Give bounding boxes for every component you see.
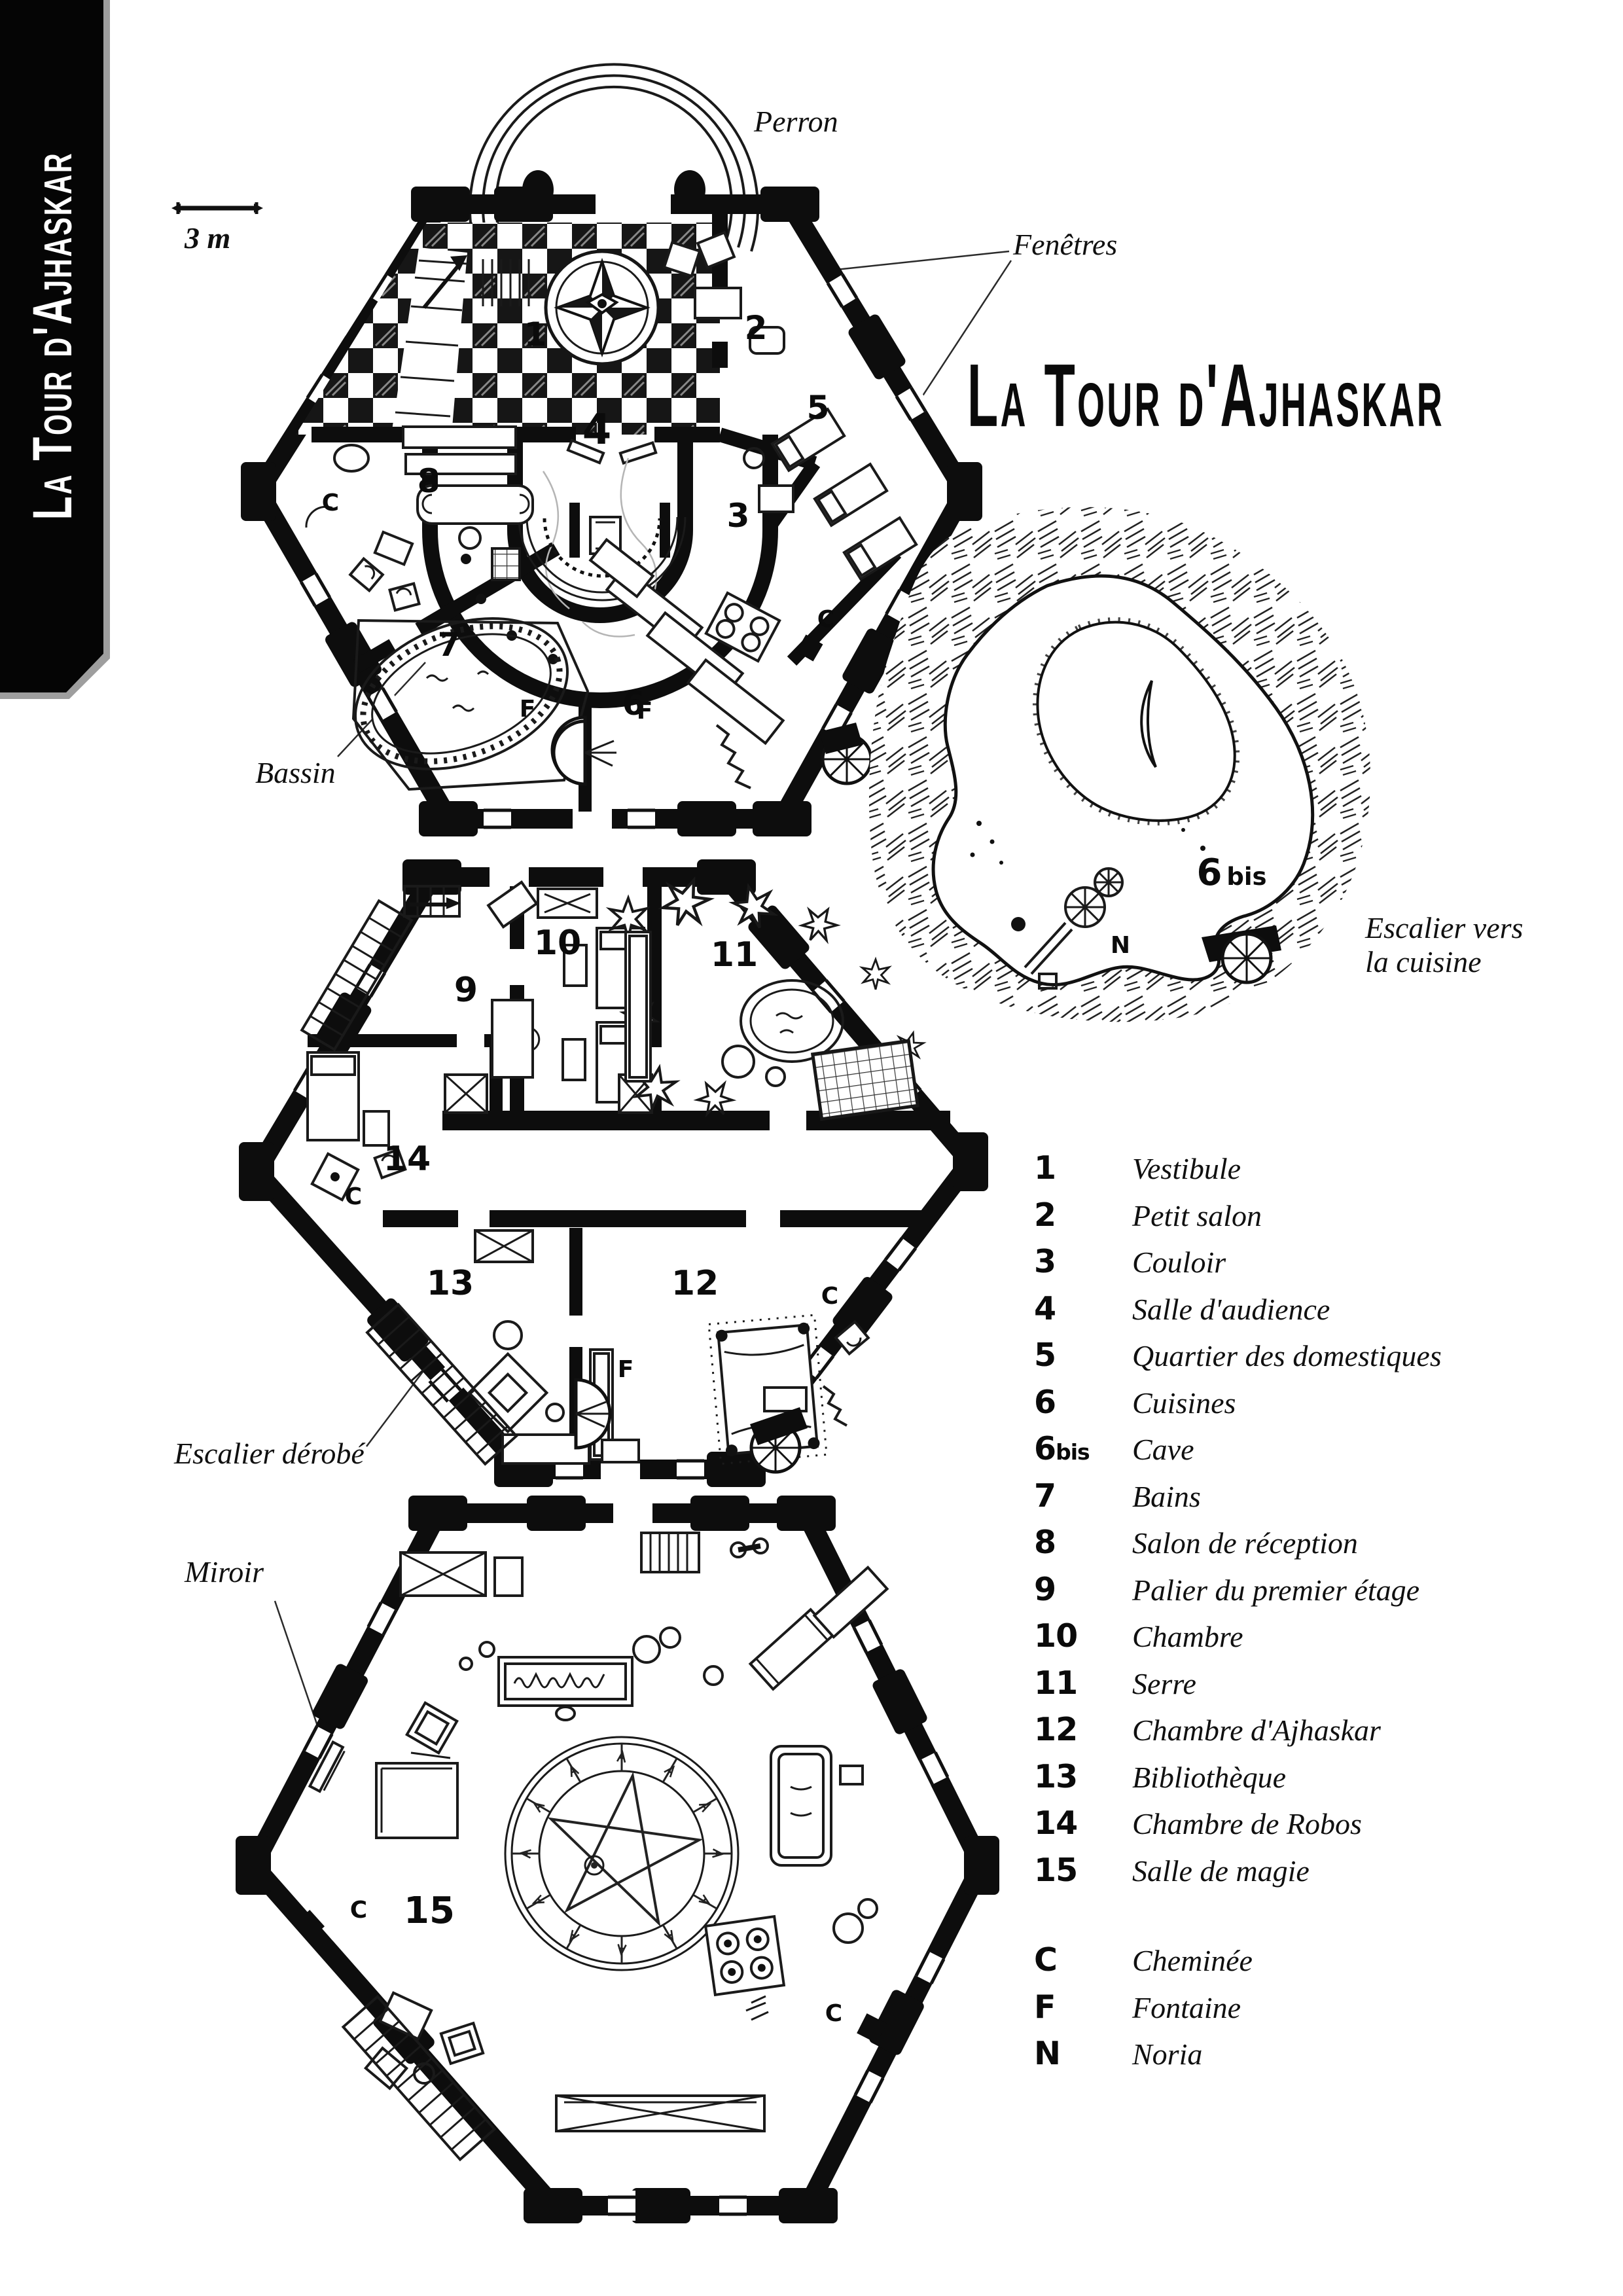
fontaine-marker: F bbox=[618, 1356, 634, 1383]
legend-number: 14 bbox=[1034, 1804, 1132, 1842]
room-12-number: 12 bbox=[671, 1264, 719, 1303]
legend-label: Petit salon bbox=[1132, 1198, 1262, 1233]
legend-label: Cave bbox=[1132, 1432, 1194, 1467]
room-4-number: 4 bbox=[582, 406, 612, 454]
legend-label: Fontaine bbox=[1132, 1990, 1241, 2025]
legend-symbol: N bbox=[1034, 2035, 1132, 2072]
room-7-number: 7 bbox=[438, 626, 461, 664]
legend-row: 3Couloir bbox=[1034, 1243, 1442, 1290]
legend-number: 1 bbox=[1034, 1149, 1132, 1187]
fire-scribble bbox=[746, 1996, 768, 2020]
fontaine-marker: F bbox=[637, 698, 653, 725]
cave-plan: 6 bis N bbox=[869, 507, 1370, 1022]
legend-row: 15Salle de magie bbox=[1034, 1852, 1442, 1899]
bone-icon bbox=[731, 1539, 768, 1557]
legend-label: Cheminée bbox=[1132, 1943, 1253, 1978]
legend-label: Chambre d'Ajhaskar bbox=[1132, 1713, 1381, 1748]
legend-number: 6bis bbox=[1034, 1430, 1132, 1467]
room-11-number: 11 bbox=[711, 935, 758, 975]
legend-label: Palier du premier étage bbox=[1132, 1573, 1419, 1607]
cheminee-marker: C bbox=[322, 490, 339, 516]
room-8-number: 8 bbox=[418, 462, 440, 500]
legend-label: Serre bbox=[1132, 1666, 1196, 1701]
legend-label: Quartier des domestiques bbox=[1132, 1338, 1442, 1373]
legend-number: 11 bbox=[1034, 1664, 1132, 1702]
first-floor-plan: 9 10 11 12 13 14 C C F bbox=[239, 859, 988, 1487]
room-14-number: 14 bbox=[383, 1139, 431, 1179]
legend-row: 8Salon de réception bbox=[1034, 1524, 1442, 1571]
sidebar-band: La Tour d'Ajhaskar bbox=[0, 0, 103, 692]
legend-number: 8 bbox=[1034, 1524, 1132, 1561]
top-floor-plan: 15 C C bbox=[236, 1496, 999, 2223]
cave-number-suffix: bis bbox=[1226, 863, 1266, 891]
legend-label: Bibliothèque bbox=[1132, 1760, 1286, 1795]
noria-marker: N bbox=[1111, 932, 1130, 959]
legend-row: 10Chambre bbox=[1034, 1617, 1442, 1664]
room-3-number: 3 bbox=[727, 497, 750, 535]
legend-row: 5Quartier des domestiques bbox=[1034, 1336, 1442, 1384]
page-title: La Tour d'Ajhaskar bbox=[967, 346, 1444, 447]
legend-number: 10 bbox=[1034, 1617, 1132, 1655]
legend-label: Noria bbox=[1132, 2037, 1202, 2072]
cheminee-marker: C bbox=[350, 1897, 367, 1924]
room-5-number: 5 bbox=[807, 389, 830, 427]
label-escalier-cuisine-line1: Escalier vers bbox=[1365, 911, 1523, 945]
legend-row: 13Bibliothèque bbox=[1034, 1758, 1442, 1805]
room-13-number: 13 bbox=[427, 1264, 474, 1303]
fountains bbox=[552, 717, 616, 784]
legend-gap bbox=[1034, 1898, 1442, 1941]
legend-number: 15 bbox=[1034, 1852, 1132, 1889]
legend-number: 13 bbox=[1034, 1758, 1132, 1795]
legend-label: Vestibule bbox=[1132, 1151, 1241, 1186]
sidebar: La Tour d'Ajhaskar bbox=[0, 0, 110, 699]
legend-label: Salle de magie bbox=[1132, 1854, 1310, 1888]
legend-row: 6bisCave bbox=[1034, 1430, 1442, 1477]
cave-number: 6 bbox=[1197, 852, 1222, 894]
legend-row: 14Chambre de Robos bbox=[1034, 1804, 1442, 1852]
label-fenetres: Fenêtres bbox=[1013, 228, 1117, 262]
legend-label: Salle d'audience bbox=[1132, 1292, 1330, 1327]
legend-label: Chambre bbox=[1132, 1619, 1243, 1654]
sidebar-title: La Tour d'Ajhaskar bbox=[9, 207, 96, 520]
room-10-number: 10 bbox=[534, 924, 581, 963]
legend-row: 12Chambre d'Ajhaskar bbox=[1034, 1711, 1442, 1758]
scale-label: 3 m bbox=[185, 221, 230, 255]
legend-label: Salon de réception bbox=[1132, 1526, 1358, 1560]
legend-number: 6 bbox=[1034, 1384, 1132, 1421]
legend-row: 2Petit salon bbox=[1034, 1196, 1442, 1244]
label-perron: Perron bbox=[754, 105, 838, 139]
label-bassin: Bassin bbox=[255, 756, 336, 790]
legend-row: 1Vestibule bbox=[1034, 1149, 1442, 1196]
ground-floor-plan: 1 2 3 4 5 6 7 8 C C F F bbox=[241, 64, 982, 836]
room-9-number: 9 bbox=[454, 971, 478, 1010]
label-escalier-cuisine-line2: la cuisine bbox=[1365, 945, 1523, 979]
cheminee-marker: C bbox=[825, 2000, 842, 2027]
legend-row: 11Serre bbox=[1034, 1664, 1442, 1712]
cheminee-marker: C bbox=[821, 1283, 838, 1310]
legend-row: 7Bains bbox=[1034, 1477, 1442, 1524]
page: 1 2 3 4 5 6 7 8 C C F F bbox=[0, 0, 1623, 2296]
label-escalier-derobe: Escalier dérobé bbox=[174, 1437, 365, 1471]
legend-number: 3 bbox=[1034, 1243, 1132, 1280]
legend-number: 4 bbox=[1034, 1290, 1132, 1327]
cheminee-marker: C bbox=[345, 1183, 362, 1210]
legend-number: 12 bbox=[1034, 1711, 1132, 1748]
legend-number: 5 bbox=[1034, 1336, 1132, 1374]
room-2-number: 2 bbox=[745, 309, 768, 347]
legend-row: FFontaine bbox=[1034, 1988, 1442, 2036]
legend-symbol: F bbox=[1034, 1988, 1132, 2026]
legend: 1Vestibule 2Petit salon 3Couloir 4Salle … bbox=[1034, 1149, 1442, 2082]
legend-row: 4Salle d'audience bbox=[1034, 1290, 1442, 1337]
label-miroir: Miroir bbox=[185, 1555, 264, 1589]
room-1-number: 1 bbox=[524, 315, 547, 353]
legend-row: 6Cuisines bbox=[1034, 1384, 1442, 1431]
legend-number: 9 bbox=[1034, 1571, 1132, 1608]
legend-label: Chambre de Robos bbox=[1132, 1806, 1362, 1841]
legend-number: 2 bbox=[1034, 1196, 1132, 1234]
legend-row: 9Palier du premier étage bbox=[1034, 1571, 1442, 1618]
legend-number: 7 bbox=[1034, 1477, 1132, 1515]
legend-label: Bains bbox=[1132, 1479, 1201, 1514]
legend-symbol: C bbox=[1034, 1941, 1132, 1979]
legend-label: Couloir bbox=[1132, 1245, 1226, 1280]
magic-circle bbox=[505, 1737, 738, 1970]
legend-row: CCheminée bbox=[1034, 1941, 1442, 1988]
legend-row: NNoria bbox=[1034, 2035, 1442, 2082]
label-escalier-cuisine: Escalier vers la cuisine bbox=[1365, 911, 1523, 978]
kitchen-furniture bbox=[590, 540, 871, 788]
fontaine-marker: F bbox=[520, 696, 536, 723]
scale-bar bbox=[171, 202, 263, 214]
cheminee-marker: C bbox=[817, 606, 834, 633]
room-15-number: 15 bbox=[404, 1890, 455, 1932]
legend-label: Cuisines bbox=[1132, 1386, 1236, 1420]
